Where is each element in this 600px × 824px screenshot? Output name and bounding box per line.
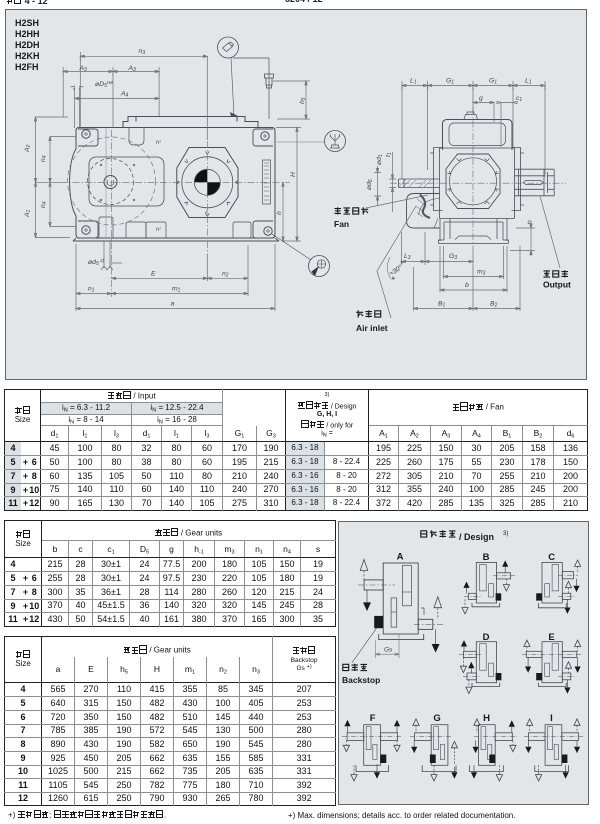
svg-text:H2HH: H2HH <box>15 29 40 39</box>
svg-text:A: A <box>397 552 404 563</box>
svg-text:m1: m1 <box>172 286 181 294</box>
svg-text:G: G <box>433 713 440 724</box>
svg-text:A1: A1 <box>24 209 32 218</box>
svg-text:A3: A3 <box>79 65 88 73</box>
svg-text:h: h <box>276 211 283 215</box>
svg-text:h¹: h¹ <box>156 227 161 233</box>
svg-text:G3: G3 <box>449 253 457 261</box>
svg-text:g: g <box>479 95 483 102</box>
svg-text:L1: L1 <box>525 78 532 86</box>
svg-text:E: E <box>151 271 156 278</box>
svg-text:3): 3) <box>503 531 508 537</box>
svg-text:L3: L3 <box>404 253 411 261</box>
svg-text:n1: n1 <box>88 286 95 294</box>
svg-text:B: B <box>483 552 490 563</box>
svg-text:t1: t1 <box>385 152 393 157</box>
svg-text:H: H <box>483 713 490 724</box>
svg-text:n4: n4 <box>40 201 48 208</box>
svg-text:H2FH: H2FH <box>15 62 39 72</box>
svg-text:c: c <box>528 219 532 226</box>
svg-text:Output: Output <box>543 280 571 290</box>
svg-text:L1: L1 <box>410 78 417 86</box>
svg-text:n3: n3 <box>139 48 146 56</box>
svg-text:B2: B2 <box>490 301 498 309</box>
svg-text:ød5 2): ød5 2) <box>88 258 104 267</box>
svg-text:c1: c1 <box>516 95 522 103</box>
svg-text:ød1: ød1 <box>376 154 384 165</box>
svg-text:Backstop: Backstop <box>342 675 380 685</box>
svg-text:H: H <box>290 172 297 177</box>
svg-text:a: a <box>171 301 175 308</box>
svg-text:A2: A2 <box>24 144 32 153</box>
svg-text:H2SH: H2SH <box>15 18 39 28</box>
svg-text:ød6: ød6 <box>366 179 374 190</box>
svg-text:≈30°: ≈30° <box>388 263 404 277</box>
svg-text:G1: G1 <box>489 78 497 86</box>
svg-text:H2DH: H2DH <box>15 40 40 50</box>
svg-text:F: F <box>370 713 376 724</box>
svg-text:B1: B1 <box>438 301 446 309</box>
svg-text:I: I <box>550 713 553 724</box>
svg-text:A4: A4 <box>120 91 129 99</box>
svg-text:øD5H8: øD5H8 <box>95 80 113 89</box>
svg-text:G1: G1 <box>446 78 454 86</box>
svg-text:n2: n2 <box>222 271 229 279</box>
svg-text:A3: A3 <box>128 65 137 73</box>
svg-text:C: C <box>548 552 555 563</box>
svg-text:h¹: h¹ <box>156 140 161 146</box>
svg-text:Gs: Gs <box>384 647 393 654</box>
svg-text:n4: n4 <box>40 155 48 162</box>
svg-text:m3: m3 <box>477 269 486 277</box>
svg-text:H2KH: H2KH <box>15 51 40 61</box>
svg-text:Air inlet: Air inlet <box>356 323 388 333</box>
svg-text:h5: h5 <box>299 97 307 104</box>
svg-text:b: b <box>465 282 469 289</box>
svg-text:/ Design: / Design <box>459 532 494 542</box>
svg-text:Fan: Fan <box>334 219 349 229</box>
